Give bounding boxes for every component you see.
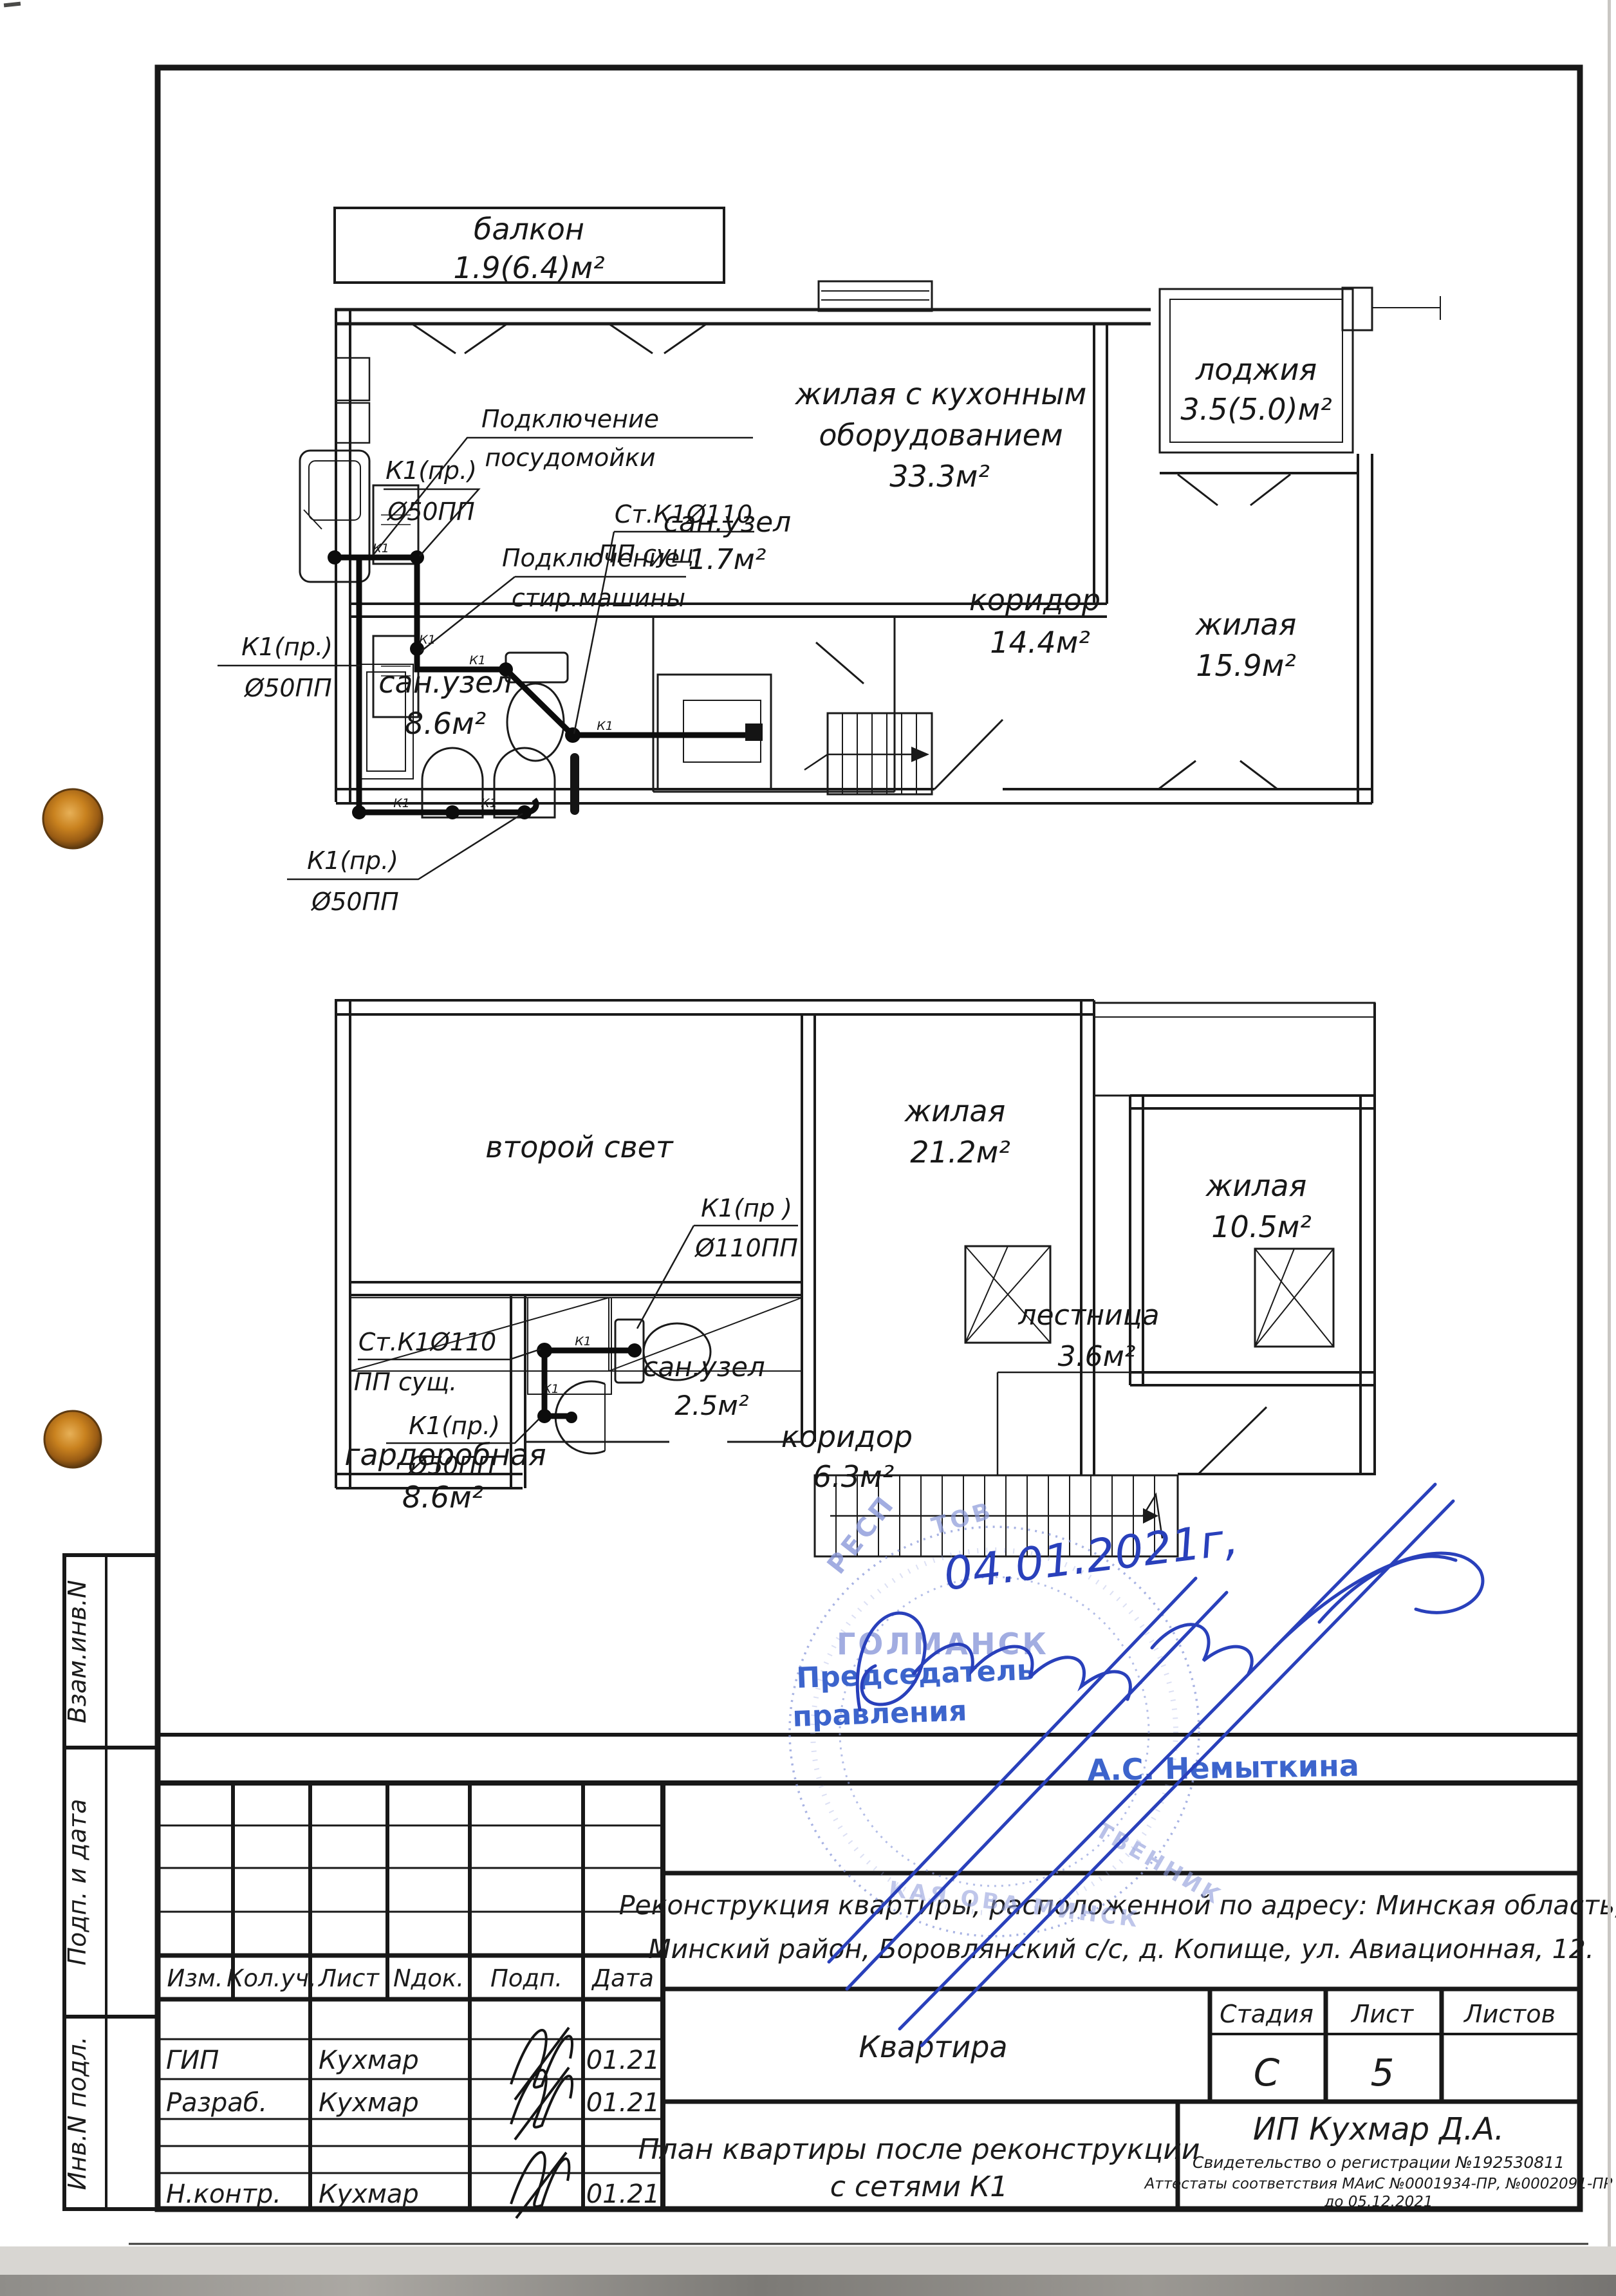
annotation: Подключение <box>502 544 680 572</box>
row-role: Н.контр. <box>166 2179 281 2209</box>
sheet-value: 5 <box>1371 2051 1395 2095</box>
pipe-tick: К1 <box>543 1382 559 1396</box>
annotation: Ø110ПП <box>694 1234 798 1262</box>
annotation: Ø50ПП <box>407 1451 495 1480</box>
sheet-label: Лист <box>1350 2000 1415 2028</box>
room-label: сан.узел <box>378 665 512 700</box>
annotation: посудомойки <box>485 443 655 472</box>
room-label: коридор <box>781 1419 913 1454</box>
room-label: жилая <box>1205 1168 1307 1203</box>
room-area: 33.3м² <box>889 459 990 494</box>
room-area: 8.6м² <box>402 1480 483 1515</box>
lower-plan-labels: второй свет жилая 21.2м² жилая 10.5м² ле… <box>344 1094 1311 1515</box>
company-attestation: Аттестаты соответствия МАиС №0001934-ПР,… <box>1144 2176 1613 2192</box>
paper-right-edge <box>1608 0 1611 2246</box>
scanned-drawing-sheet: балкон 1.9(6.4)м² жилая с кухонным обору… <box>0 0 1616 2296</box>
col-header-izm: Изм. <box>167 1965 223 1992</box>
col-header-data: Дата <box>591 1965 654 1992</box>
side-strip-label-inv: Инв.N подл. <box>63 2037 91 2190</box>
annotation: К1(пр ) <box>701 1194 792 1222</box>
room-label: второй свет <box>485 1130 674 1164</box>
company-name: ИП Кухмар Д.А. <box>1253 2111 1504 2147</box>
annotation: Ст.К1Ø110 <box>358 1328 496 1356</box>
annotation: Ø50ПП <box>243 674 331 702</box>
pipe-tick: К1 <box>481 796 497 810</box>
col-header-ndok: Nдок. <box>393 1965 464 1992</box>
room-area: 2.5м² <box>674 1390 748 1421</box>
stage-label: Стадия <box>1220 2000 1314 2028</box>
sheets-label: Листов <box>1463 2000 1556 2028</box>
annotation: Ст.К1Ø110 <box>615 500 752 528</box>
company-certificate: Свидетельство о регистрации №192530811 <box>1193 2153 1565 2172</box>
room-label: лоджия <box>1195 352 1317 387</box>
hole-punch-bottom <box>44 1411 101 1468</box>
scan-bottom-edge <box>0 2275 1616 2296</box>
row-date: 01.21 <box>586 2046 660 2075</box>
room-area: 3.5(5.0)м² <box>1180 392 1332 427</box>
stairs-arrow-lower <box>1143 1508 1158 1524</box>
pipe-tick: К1 <box>393 796 410 810</box>
room-area: 10.5м² <box>1211 1209 1312 1244</box>
room-area: 21.2м² <box>910 1135 1010 1170</box>
stage-value: С <box>1254 2051 1280 2095</box>
annotation: К1(пр.) <box>409 1412 500 1440</box>
row-date: 01.21 <box>586 2179 660 2209</box>
room-label: сан.узел <box>643 1351 765 1383</box>
pipe-tick: К1 <box>419 633 436 647</box>
company-attestation-valid: до 05.12.2021 <box>1324 2194 1433 2210</box>
room-area: 6.3м² <box>813 1459 894 1494</box>
room-area: 3.6м² <box>1058 1340 1136 1373</box>
annotation: Ø50ПП <box>386 498 474 526</box>
side-strip-label-vzam: Взам.инв.N <box>63 1580 91 1724</box>
table-signatures <box>511 2028 572 2218</box>
project-address-line2: Минский район, Боровлянский с/с, д. Копи… <box>648 1934 1594 1965</box>
room-label: лестница <box>1017 1299 1159 1332</box>
room-label: балкон <box>474 212 584 247</box>
room-label: жилая <box>904 1094 1006 1128</box>
row-name: Кухмар <box>319 2046 419 2075</box>
row-date: 01.21 <box>586 2088 660 2118</box>
room-area: 1.9(6.4)м² <box>453 250 604 285</box>
annotation: К1(пр.) <box>385 456 477 485</box>
pipe-tick: К1 <box>373 541 389 555</box>
stamp-rim-text: РЕСП <box>822 1489 902 1580</box>
annotation: стир.машины <box>512 584 685 612</box>
room-label: коридор <box>969 583 1101 617</box>
annotation: К1(пр.) <box>241 633 333 661</box>
annotation: К1(пр.) <box>307 846 398 875</box>
col-header-list: Лист <box>317 1965 380 1992</box>
row-name: Кухмар <box>319 2088 419 2118</box>
drawing-title-line1: План квартиры после реконструкции <box>638 2133 1200 2166</box>
stairs-arrow-upper <box>911 747 929 762</box>
stamp-rim-text: ТОВ <box>929 1497 996 1540</box>
row-role: Разраб. <box>166 2088 267 2118</box>
annotation: ПП сущ. <box>354 1368 457 1396</box>
pipe-tick: К1 <box>469 653 486 667</box>
shower-drain-box <box>745 723 763 741</box>
approval-printed-texts: Председатель правления А.С. Немыткина <box>792 1654 1360 1787</box>
room-area: 15.9м² <box>1196 648 1296 683</box>
room-label: жилая с кухонным <box>795 377 1087 411</box>
annotation: Ø50ПП <box>310 888 398 916</box>
upper-plan-walls <box>335 208 1440 803</box>
side-strip-label-podp: Подп. и дата <box>63 1799 91 1966</box>
drawing-title-line2: с сетями К1 <box>830 2170 1008 2203</box>
room-area: 14.4м² <box>990 625 1090 660</box>
col-header-podp: Подп. <box>490 1965 562 1992</box>
hole-punch-top <box>43 789 102 848</box>
row-name: Кухмар <box>319 2179 419 2209</box>
col-header-kol: Кол.уч. <box>227 1965 317 1992</box>
drawing-canvas: балкон 1.9(6.4)м² жилая с кухонным обору… <box>0 0 1616 2296</box>
approver-name: А.С. Немыткина <box>1087 1748 1359 1787</box>
scan-bottom-band <box>0 2246 1616 2276</box>
room-label: жилая <box>1195 607 1297 642</box>
row-role: ГИП <box>166 2046 219 2075</box>
room-area: 8.6м² <box>405 706 486 741</box>
annotation: Подключение <box>481 405 659 433</box>
approver-role-line2: правления <box>792 1695 968 1733</box>
room-label: оборудованием <box>819 418 1063 453</box>
pipe-tick: К1 <box>575 1334 591 1349</box>
towel-rail <box>570 753 579 815</box>
pipe-tick: К1 <box>597 719 613 733</box>
approver-role-line1: Председатель <box>796 1654 1036 1695</box>
